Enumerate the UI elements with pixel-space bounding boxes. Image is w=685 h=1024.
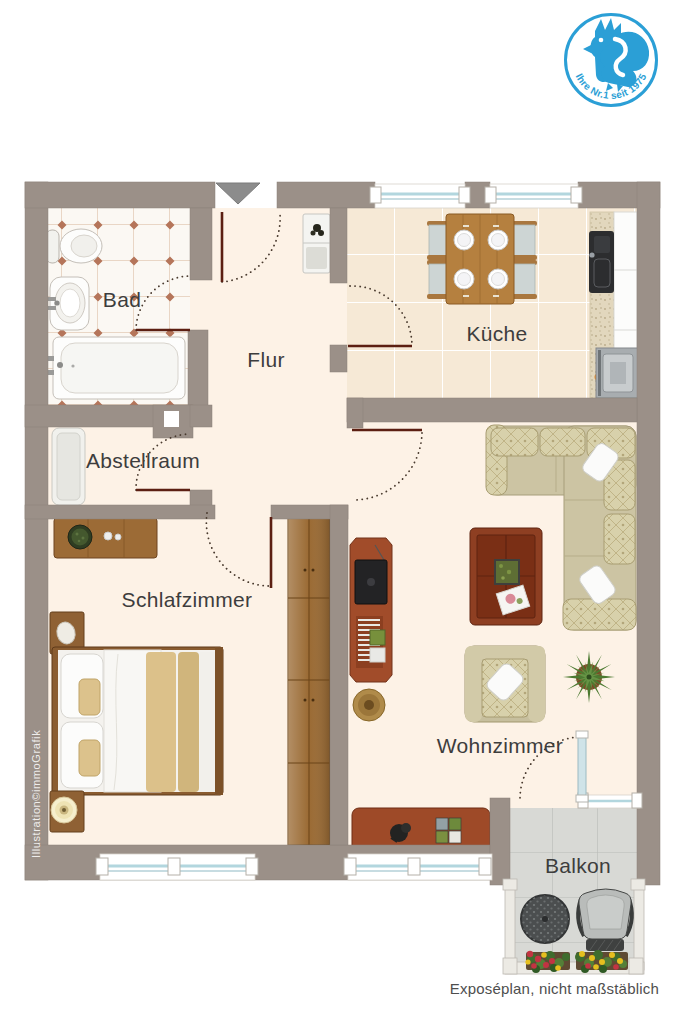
wall-bath-right-lower bbox=[188, 330, 208, 407]
armchair-icon bbox=[465, 646, 545, 722]
dresser-icon bbox=[54, 518, 157, 558]
watermark-text: Illustration©immoGrafik bbox=[30, 730, 42, 858]
storage-cabinet-icon bbox=[52, 428, 85, 505]
room-label-bad: Bad bbox=[103, 288, 141, 311]
floorplan-page: Bad Flur Küche Abstellraum Schlafzimmer … bbox=[0, 0, 685, 1024]
floorplan-canvas: Bad Flur Küche Abstellraum Schlafzimmer … bbox=[0, 0, 685, 1024]
double-bed-icon bbox=[52, 647, 223, 795]
logo-badge: Ihre Nr.1 seit 1975 bbox=[566, 15, 657, 106]
wall-bedroom-living bbox=[330, 505, 348, 845]
wall-top-mid bbox=[277, 182, 375, 208]
room-label-schlafzimmer: Schlafzimmer bbox=[122, 588, 253, 611]
toilet-icon bbox=[46, 229, 102, 263]
room-label-kueche: Küche bbox=[466, 322, 527, 345]
nightstand-lamp-icon bbox=[50, 791, 84, 832]
wall-storage-right-upper bbox=[190, 405, 212, 427]
room-label-abstellraum: Abstellraum bbox=[86, 449, 200, 472]
wardrobe-icon bbox=[288, 512, 330, 845]
bistro-table-icon bbox=[521, 895, 569, 943]
bathtub-icon bbox=[44, 337, 185, 399]
window-kitchen-2 bbox=[485, 184, 582, 208]
entrance-arrow-icon bbox=[216, 183, 260, 204]
window-livingroom bbox=[344, 854, 492, 880]
door-leaf-balcony bbox=[576, 731, 588, 802]
kitchen-sink-icon bbox=[589, 231, 614, 293]
window-bedroom bbox=[96, 854, 258, 880]
dining-table-icon bbox=[446, 214, 514, 304]
wall-kitchen-bottom-stub bbox=[347, 398, 363, 428]
wall-shaft-opening bbox=[164, 411, 179, 427]
wall-balcony-stub bbox=[490, 798, 510, 885]
room-label-wohnzimmer: Wohnzimmer bbox=[437, 734, 563, 757]
wall-hall-kitchen-upper bbox=[330, 208, 347, 283]
window-kitchen-1 bbox=[370, 184, 470, 208]
coffee-table-icon bbox=[470, 528, 542, 625]
footer-note: Exposéplan, nicht maßstäblich bbox=[450, 980, 659, 997]
room-label-balkon: Balkon bbox=[545, 854, 611, 877]
tv-lowboard-icon bbox=[350, 538, 392, 682]
wall-kitchen-bottom bbox=[347, 398, 637, 422]
stove-icon bbox=[596, 348, 638, 398]
wall-bedroom-top-left bbox=[25, 505, 215, 519]
pouf-icon bbox=[353, 689, 385, 721]
wall-top-left bbox=[25, 182, 215, 208]
washbasin-icon bbox=[44, 277, 89, 330]
balcony-chair-icon bbox=[578, 889, 632, 951]
wall-right bbox=[637, 182, 660, 885]
wall-hall-kitchen-stub bbox=[330, 345, 347, 372]
hall-cabinet-icon bbox=[303, 214, 330, 273]
wall-bath-right-upper bbox=[190, 208, 212, 280]
room-label-flur: Flur bbox=[247, 348, 284, 371]
